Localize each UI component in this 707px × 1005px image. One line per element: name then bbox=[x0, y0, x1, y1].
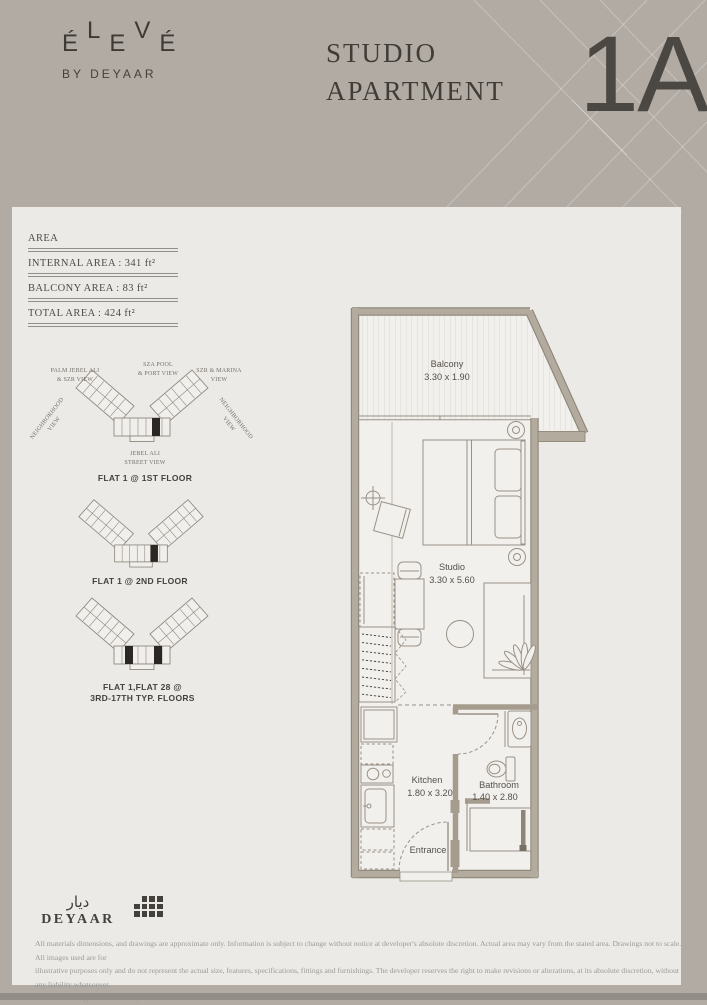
page-title: STUDIO APARTMENT bbox=[326, 34, 505, 110]
pillow bbox=[495, 496, 521, 538]
view-label-jebel-ali-street: JEBEL ALISTREET VIEW bbox=[100, 450, 190, 467]
content-panel: AREA INTERNAL AREA : 341 ft² BALCONY ARE… bbox=[12, 207, 681, 985]
logo-letter: É bbox=[159, 30, 175, 58]
area-summary-box: AREA INTERNAL AREA : 341 ft² BALCONY ARE… bbox=[28, 227, 178, 327]
flat-location-marker bbox=[154, 646, 162, 664]
deyaar-squares-mark bbox=[134, 896, 163, 917]
balcony-area-value: BALCONY AREA : 83 ft² bbox=[28, 277, 178, 298]
studio-label: Studio bbox=[439, 562, 465, 572]
bed bbox=[423, 440, 525, 545]
view-label-szr-marina: SZR & MARINAVIEW bbox=[179, 367, 259, 384]
logo-byline: BY DEYAAR bbox=[62, 67, 184, 81]
flat-location-marker bbox=[125, 646, 133, 664]
bathroom-dims: 1.40 x 2.80 bbox=[472, 792, 517, 802]
logo-letter: É bbox=[62, 30, 78, 58]
key-plan-2-building bbox=[75, 496, 207, 576]
flat-location-marker bbox=[152, 418, 160, 436]
page-bottom-shadow bbox=[0, 993, 707, 1000]
wall-pier bbox=[451, 840, 460, 867]
key-plan-3-building bbox=[72, 594, 212, 679]
logo-letter: L bbox=[87, 17, 100, 45]
balcony-dims: 3.30 x 1.90 bbox=[424, 372, 469, 382]
area-heading: AREA bbox=[28, 227, 178, 248]
deyaar-arabic-wordmark: ديار bbox=[35, 893, 121, 911]
deyaar-logo: ديار DEYAAR bbox=[35, 893, 121, 928]
page-title-line2: APARTMENT bbox=[326, 72, 505, 110]
key-plan-1-caption: FLAT 1 @ 1ST FLOOR bbox=[65, 473, 225, 484]
kitchen-dims: 1.80 x 3.20 bbox=[407, 788, 452, 798]
kitchen-sink bbox=[361, 785, 394, 827]
page-title-line1: STUDIO bbox=[326, 34, 505, 72]
headboard bbox=[521, 441, 525, 544]
cooktop bbox=[361, 765, 393, 783]
entrance-threshold bbox=[400, 872, 452, 881]
key-plan-2-caption: FLAT 1 @ 2ND FLOOR bbox=[65, 576, 215, 587]
disclaimer-line1: All materials dimensions, and drawings a… bbox=[35, 937, 683, 964]
entrance-label: Entrance bbox=[410, 845, 447, 855]
bathroom-label: Bathroom bbox=[479, 780, 519, 790]
disclaimer-line2: illustrative purposes only and do not re… bbox=[35, 964, 683, 991]
total-area-value: TOTAL AREA : 424 ft² bbox=[28, 302, 178, 323]
bathroom-sink bbox=[505, 711, 531, 747]
dining-set bbox=[395, 562, 424, 646]
exterior-wall-fin bbox=[538, 432, 585, 442]
eleve-logo: ÉLEVÉ BY DEYAAR bbox=[62, 30, 184, 81]
key-plan-3: FLAT 1,FLAT 28 @ 3RD-17TH TYP. FLOORS bbox=[25, 592, 265, 712]
unit-code: 1A bbox=[579, 20, 707, 128]
pillow bbox=[495, 449, 521, 491]
eleve-logo-letters: ÉLEVÉ bbox=[62, 30, 184, 58]
brochure-page: { "header": { "logo": { "letters": ["É",… bbox=[0, 0, 707, 1000]
kitchen-label: Kitchen bbox=[412, 775, 443, 785]
divider bbox=[28, 323, 178, 327]
view-label-palm-jebel-ali: PALM JEBEL ALI& SZR VIEW bbox=[33, 367, 117, 384]
key-plan-3-caption: FLAT 1,FLAT 28 @ 3RD-17TH TYP. FLOORS bbox=[60, 682, 225, 704]
dining-table bbox=[395, 579, 424, 629]
view-label-neighborhood-right: NEIGHBORHOODVIEW bbox=[204, 389, 260, 455]
floor-plan: Balcony 3.30 x 1.90 Studio 3.30 x 5.60 K… bbox=[340, 300, 640, 890]
sofa-console bbox=[484, 583, 537, 678]
internal-area-value: INTERNAL AREA : 341 ft² bbox=[28, 252, 178, 273]
deyaar-latin-wordmark: DEYAAR bbox=[35, 912, 121, 928]
key-plan-1: PALM JEBEL ALI& SZR VIEW SZA POOL& PORT … bbox=[25, 358, 265, 498]
refrigerator bbox=[361, 707, 397, 742]
view-label-neighborhood-left: NEIGHBORHOODVIEW bbox=[23, 389, 79, 455]
key-plan-2: FLAT 1 @ 2ND FLOOR bbox=[25, 494, 265, 594]
wall-pier bbox=[451, 800, 460, 813]
studio-dims: 3.30 x 5.60 bbox=[429, 575, 474, 585]
logo-letter: V bbox=[134, 17, 150, 45]
flat-location-marker bbox=[150, 545, 158, 562]
logo-letter: E bbox=[109, 30, 125, 58]
balcony-label: Balcony bbox=[431, 359, 464, 369]
